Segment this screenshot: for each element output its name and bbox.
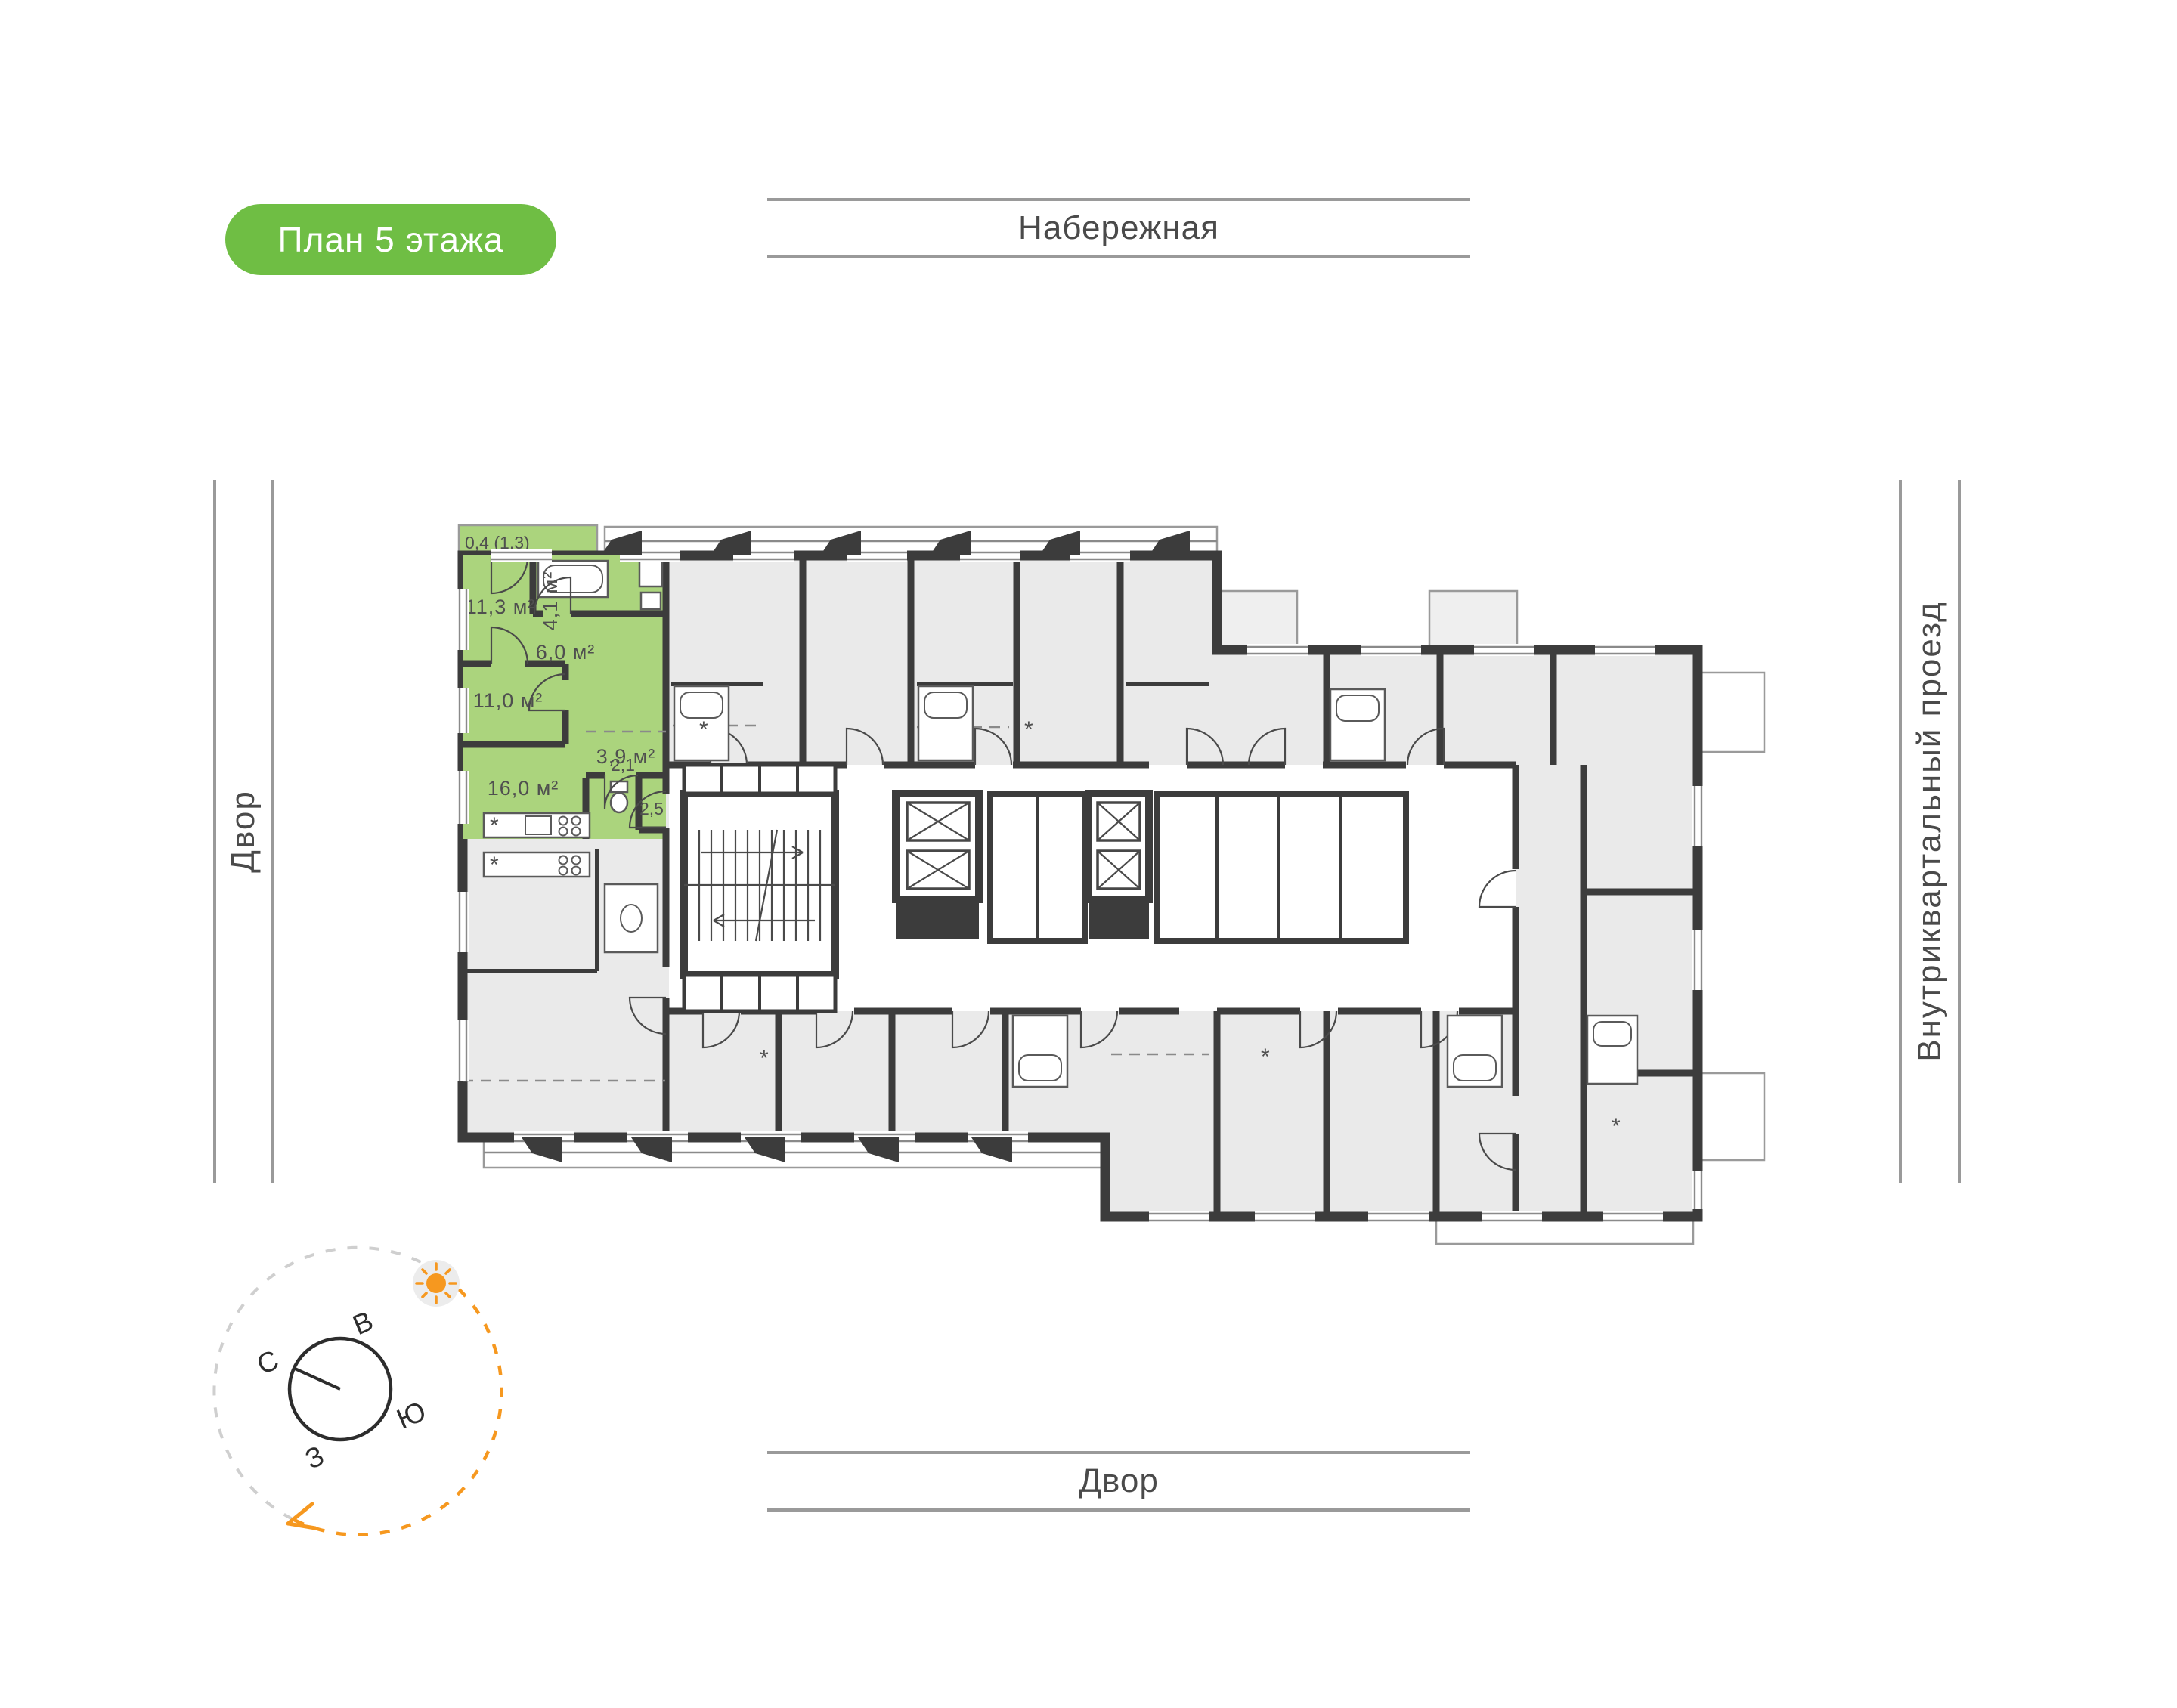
room-label-bedroom-1: 11,3 м² <box>466 596 536 618</box>
kitchen-counter: * <box>484 813 590 838</box>
room-label-entry: 2,5 <box>639 799 664 818</box>
svg-text:*: * <box>490 813 499 838</box>
svg-text:*: * <box>1612 1114 1621 1139</box>
street-name-top: Набережная <box>1018 209 1219 247</box>
compass-arrow-icon <box>288 1504 315 1528</box>
svg-text:*: * <box>699 717 708 742</box>
floor-plan: * 0,4 (1,3) 11,3 м² 4,1 м² 6,0 м² 11,0 м… <box>446 505 1776 1245</box>
room-label-bedroom-2: 11,0 м² <box>473 689 543 712</box>
room-label-kitchen: 16,0 м² <box>488 777 559 800</box>
street-name-bottom: Двор <box>1079 1462 1159 1500</box>
core-service-rooms <box>1157 794 1406 941</box>
elevator-block-2 <box>1088 794 1149 939</box>
street-label-right: Внутриквартальный проезд <box>1899 480 1961 1183</box>
room-label-hallway: 6,0 м² <box>536 641 596 664</box>
compass-east: В <box>348 1305 378 1341</box>
sun-icon <box>413 1260 460 1307</box>
bathroom-sink-icon <box>639 561 662 609</box>
street-label-top: Набережная <box>767 198 1470 258</box>
room-label-wc: 2,1 <box>611 755 635 775</box>
street-name-right: Внутриквартальный проезд <box>1911 601 1949 1062</box>
core-storage-rooms <box>990 794 1085 941</box>
room-label-bathroom: 4,1 м² <box>539 571 562 631</box>
street-label-bottom: Двор <box>767 1451 1470 1512</box>
compass-west: З <box>301 1440 329 1474</box>
street-label-left: Двор <box>213 480 274 1183</box>
elevator-block-1 <box>896 794 979 939</box>
floor-plan-badge: План 5 этажа <box>225 204 556 275</box>
compass: В С Ю З <box>197 1224 544 1572</box>
compass-south: Ю <box>392 1395 430 1434</box>
compass-north: С <box>252 1344 283 1380</box>
street-name-left: Двор <box>225 790 262 873</box>
stairwell <box>684 765 835 1011</box>
svg-text:*: * <box>1261 1044 1270 1069</box>
svg-text:*: * <box>490 852 499 877</box>
svg-text:*: * <box>760 1046 769 1071</box>
svg-text:*: * <box>1024 717 1033 742</box>
